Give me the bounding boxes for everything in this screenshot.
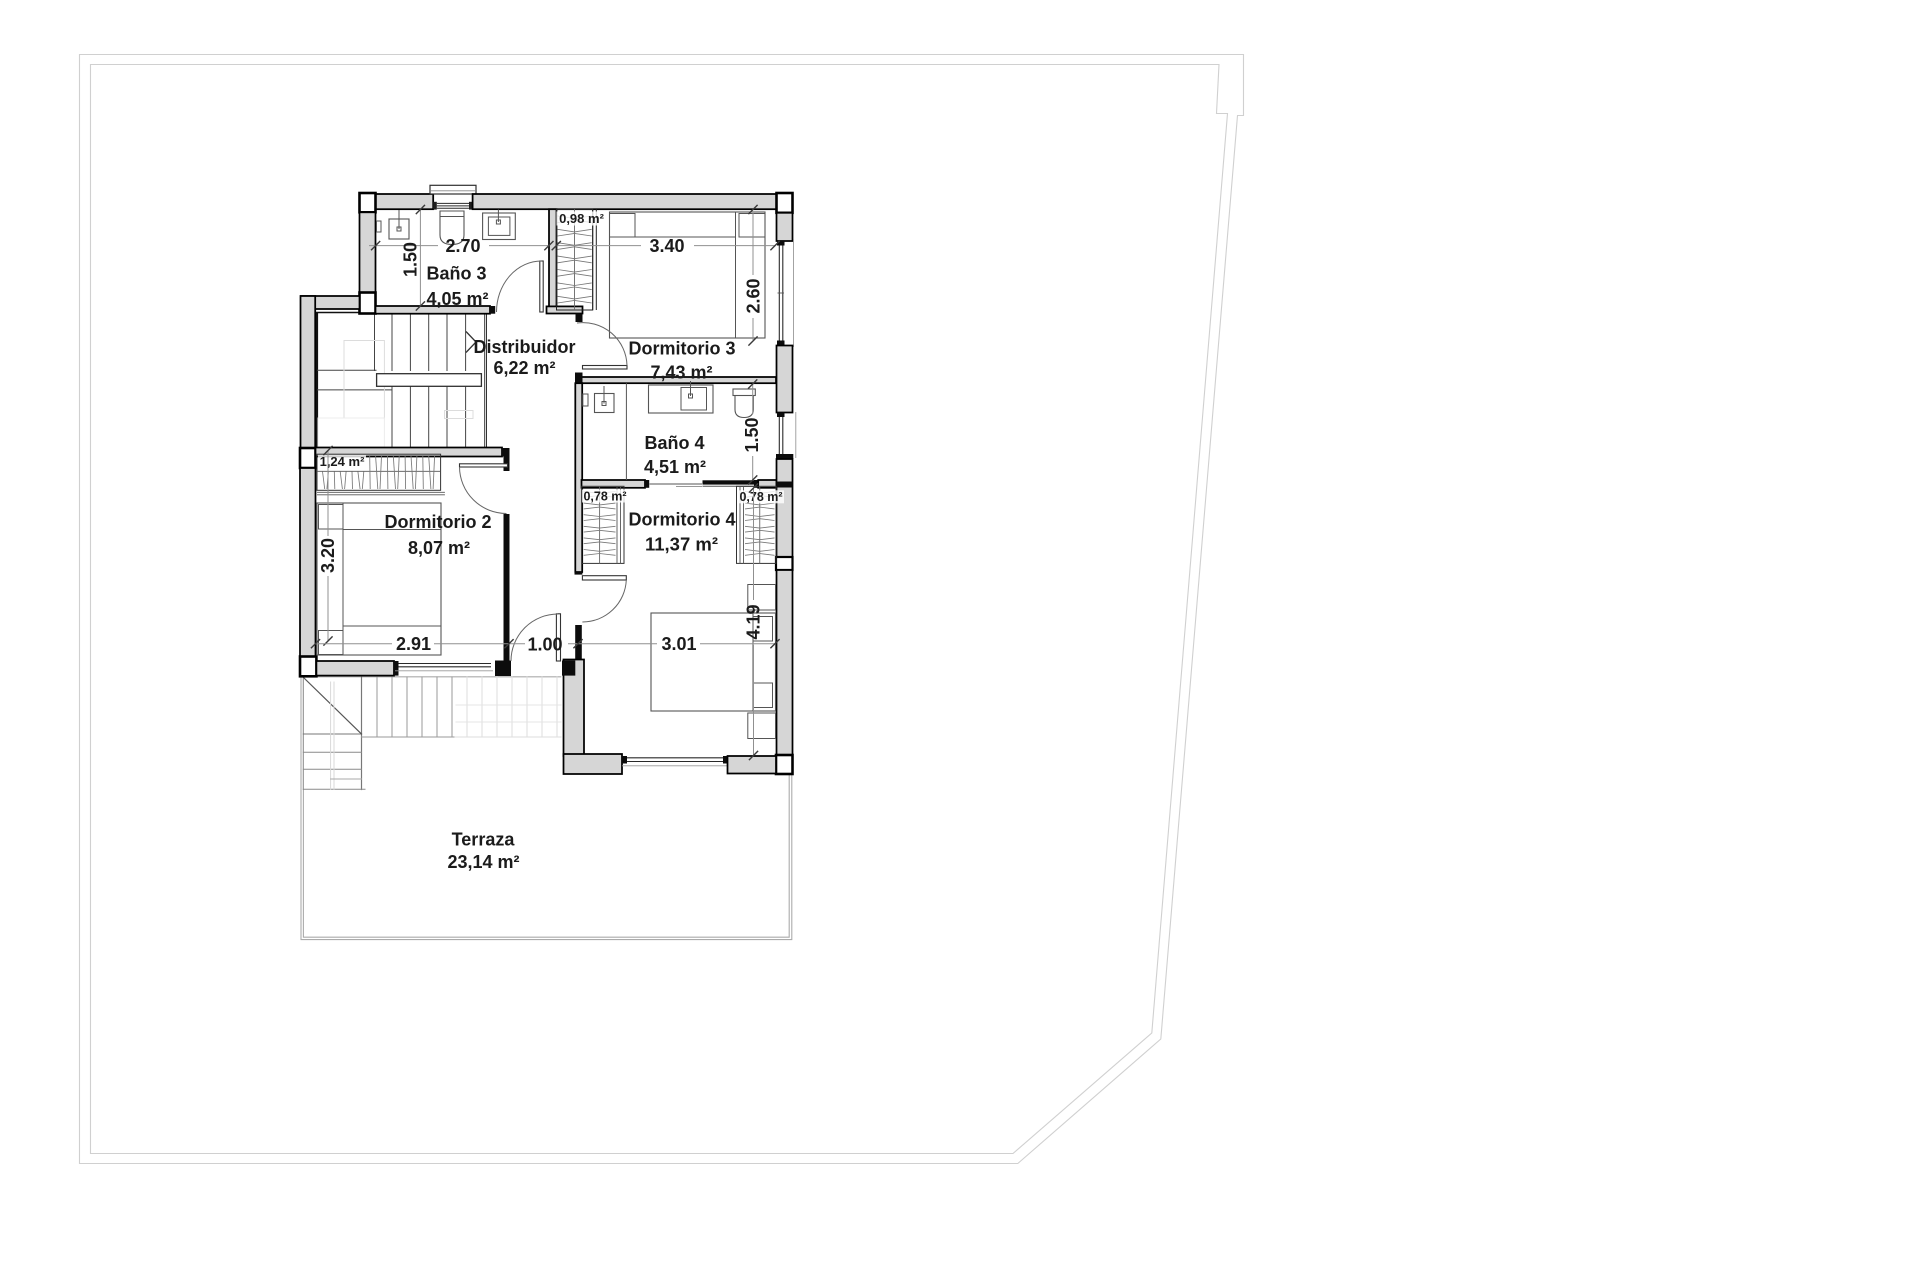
svg-text:0,78 m²: 0,78 m² <box>583 489 626 503</box>
svg-text:3.40: 3.40 <box>649 236 684 256</box>
svg-text:1.50: 1.50 <box>742 417 762 452</box>
svg-text:4.19: 4.19 <box>743 604 763 639</box>
svg-text:8,07 m²: 8,07 m² <box>408 538 470 558</box>
svg-text:1.50: 1.50 <box>401 242 421 277</box>
svg-text:Distribuidor: Distribuidor <box>474 337 576 357</box>
svg-text:Dormitorio 3: Dormitorio 3 <box>628 339 735 359</box>
svg-text:4,05 m²: 4,05 m² <box>426 289 488 309</box>
svg-text:0,78 m²: 0,78 m² <box>739 490 782 504</box>
svg-text:1.00: 1.00 <box>527 635 562 655</box>
svg-text:2.60: 2.60 <box>744 278 764 313</box>
svg-text:Dormitorio 4: Dormitorio 4 <box>628 510 735 530</box>
svg-text:Baño 4: Baño 4 <box>644 433 704 453</box>
svg-text:7,43 m²: 7,43 m² <box>650 363 712 383</box>
svg-text:6,22 m²: 6,22 m² <box>493 358 555 378</box>
svg-text:2.91: 2.91 <box>396 634 431 654</box>
svg-text:11,37 m²: 11,37 m² <box>645 533 718 554</box>
svg-text:2.70: 2.70 <box>445 236 480 256</box>
svg-text:Terraza: Terraza <box>452 830 516 850</box>
svg-text:4,51 m²: 4,51 m² <box>644 457 706 477</box>
svg-text:3.01: 3.01 <box>661 634 696 654</box>
svg-text:0,98 m²: 0,98 m² <box>559 211 604 226</box>
svg-text:Baño 3: Baño 3 <box>426 264 486 284</box>
svg-text:Dormitorio 2: Dormitorio 2 <box>384 512 491 532</box>
svg-text:3.20: 3.20 <box>318 538 338 573</box>
svg-text:23,14 m²: 23,14 m² <box>447 852 519 872</box>
svg-text:1,24 m²: 1,24 m² <box>320 454 365 469</box>
